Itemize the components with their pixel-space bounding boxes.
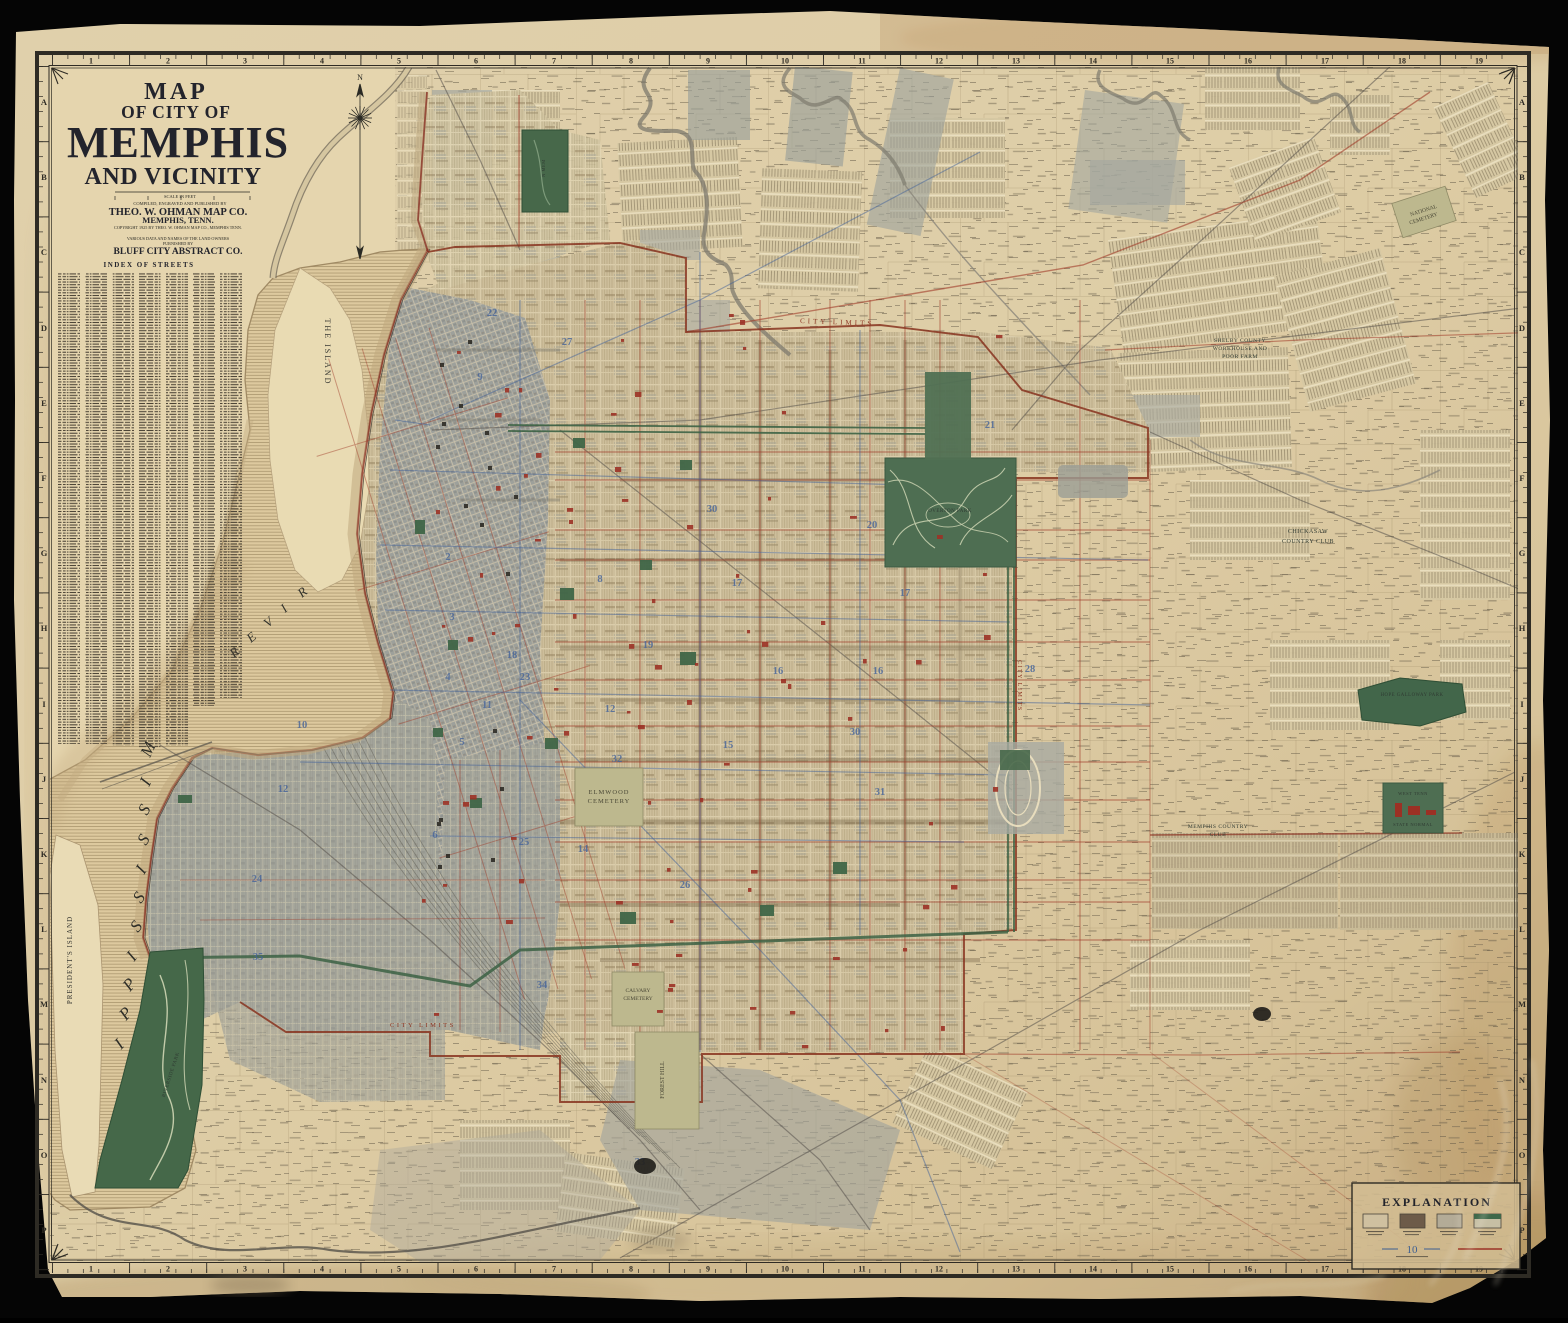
svg-text:A: A xyxy=(41,97,48,107)
svg-text:26: 26 xyxy=(680,880,691,891)
svg-text:CEMETERY: CEMETERY xyxy=(623,996,652,1002)
svg-text:PRESIDENT'S ISLAND: PRESIDENT'S ISLAND xyxy=(66,916,74,1004)
svg-text:E: E xyxy=(41,398,47,408)
svg-text:C: C xyxy=(1519,247,1525,257)
svg-text:3: 3 xyxy=(243,1265,247,1274)
svg-text:MEMPHIS, TENN.: MEMPHIS, TENN. xyxy=(142,215,213,225)
svg-text:SHELBY COUNTY: SHELBY COUNTY xyxy=(1214,338,1266,344)
svg-text:5: 5 xyxy=(459,737,464,748)
svg-text:H: H xyxy=(1519,623,1526,633)
svg-text:M: M xyxy=(1518,999,1526,1009)
svg-text:P: P xyxy=(41,1225,46,1235)
svg-text:10: 10 xyxy=(297,720,308,731)
svg-text:SCALE IN FEET: SCALE IN FEET xyxy=(164,194,196,199)
svg-text:12: 12 xyxy=(935,57,943,66)
svg-text:19: 19 xyxy=(1475,57,1483,66)
svg-text:19: 19 xyxy=(643,640,654,651)
svg-text:5: 5 xyxy=(397,57,401,66)
svg-text:4: 4 xyxy=(320,57,324,66)
svg-text:12: 12 xyxy=(605,704,616,715)
svg-text:11: 11 xyxy=(858,57,866,66)
svg-text:B: B xyxy=(41,172,47,182)
svg-text:17: 17 xyxy=(1321,57,1329,66)
svg-text:18: 18 xyxy=(507,650,518,661)
svg-text:4: 4 xyxy=(445,672,451,683)
svg-text:8: 8 xyxy=(629,57,633,66)
svg-text:HOPE GALLOWAY PARK: HOPE GALLOWAY PARK xyxy=(1381,693,1444,698)
svg-text:16: 16 xyxy=(773,666,784,677)
svg-text:L: L xyxy=(41,924,47,934)
svg-text:11: 11 xyxy=(482,700,492,711)
svg-text:15: 15 xyxy=(1166,1265,1174,1274)
svg-text:M: M xyxy=(40,999,48,1009)
svg-text:2: 2 xyxy=(166,57,170,66)
svg-text:14: 14 xyxy=(578,844,589,855)
svg-text:N: N xyxy=(41,1075,48,1085)
svg-text:ELMWOOD: ELMWOOD xyxy=(589,789,630,796)
svg-text:4: 4 xyxy=(320,1265,324,1274)
svg-text:FURNISHED BY: FURNISHED BY xyxy=(163,241,193,246)
svg-text:9: 9 xyxy=(706,1265,710,1274)
svg-text:20: 20 xyxy=(867,520,878,531)
svg-text:WORKHOUSE AND: WORKHOUSE AND xyxy=(1213,346,1268,352)
svg-text:AND VICINITY: AND VICINITY xyxy=(85,164,262,190)
svg-text:10: 10 xyxy=(781,57,789,66)
svg-text:WEST TENN: WEST TENN xyxy=(1398,791,1428,796)
svg-text:31: 31 xyxy=(875,787,886,798)
svg-text:9: 9 xyxy=(706,57,710,66)
svg-text:25: 25 xyxy=(519,837,530,848)
svg-text:MEMPHIS COUNTRY: MEMPHIS COUNTRY xyxy=(1188,824,1248,830)
svg-text:10: 10 xyxy=(781,1265,789,1274)
svg-text:14: 14 xyxy=(1089,57,1097,66)
svg-text:32: 32 xyxy=(612,754,623,765)
svg-text:22: 22 xyxy=(487,308,498,319)
svg-text:30: 30 xyxy=(850,727,861,738)
svg-text:2: 2 xyxy=(445,552,450,563)
svg-text:7: 7 xyxy=(552,1265,556,1274)
svg-text:K: K xyxy=(41,849,48,859)
svg-text:OVERTON PARK: OVERTON PARK xyxy=(928,509,972,514)
svg-text:16: 16 xyxy=(1244,1265,1252,1274)
svg-text:CEMETERY: CEMETERY xyxy=(588,798,631,805)
svg-text:9: 9 xyxy=(477,372,482,383)
svg-text:3: 3 xyxy=(449,612,454,623)
svg-text:23: 23 xyxy=(520,672,531,683)
svg-text:C: C xyxy=(41,247,47,257)
svg-text:G: G xyxy=(41,548,48,558)
svg-text:N: N xyxy=(357,73,363,82)
svg-text:13: 13 xyxy=(1012,57,1020,66)
svg-text:CALVARY: CALVARY xyxy=(625,988,650,994)
svg-text:15: 15 xyxy=(723,740,734,751)
svg-text:35: 35 xyxy=(253,952,264,963)
svg-text:F: F xyxy=(41,473,46,483)
svg-text:N MEM: N MEM xyxy=(541,159,546,177)
svg-text:STATE NORMAL: STATE NORMAL xyxy=(1393,822,1433,827)
svg-text:28: 28 xyxy=(1025,664,1036,675)
svg-text:3: 3 xyxy=(243,57,247,66)
svg-text:24: 24 xyxy=(252,874,263,885)
svg-text:16: 16 xyxy=(1244,57,1252,66)
svg-text:BLUFF CITY ABSTRACT CO.: BLUFF CITY ABSTRACT CO. xyxy=(114,247,243,257)
svg-text:6: 6 xyxy=(432,830,437,841)
svg-text:CITY LIMITS: CITY LIMITS xyxy=(1016,660,1022,712)
svg-text:1: 1 xyxy=(89,1265,93,1274)
svg-text:8: 8 xyxy=(597,574,602,585)
svg-text:F: F xyxy=(1519,473,1524,483)
svg-text:L: L xyxy=(1519,924,1525,934)
svg-text:1: 1 xyxy=(89,57,93,66)
svg-text:11: 11 xyxy=(858,1265,866,1274)
svg-text:MEMPHIS: MEMPHIS xyxy=(67,118,289,167)
svg-text:14: 14 xyxy=(1089,1265,1097,1274)
svg-text:6: 6 xyxy=(474,1265,478,1274)
svg-text:27: 27 xyxy=(562,337,573,348)
svg-text:E: E xyxy=(1519,398,1525,408)
svg-text:6: 6 xyxy=(474,57,478,66)
svg-text:CITY LIMITS: CITY LIMITS xyxy=(390,1022,456,1029)
svg-text:30: 30 xyxy=(707,504,718,515)
svg-text:5: 5 xyxy=(397,1265,401,1274)
svg-text:B: B xyxy=(1519,172,1525,182)
svg-text:16: 16 xyxy=(873,666,884,677)
svg-text:18: 18 xyxy=(1398,57,1406,66)
svg-text:THE ISLAND: THE ISLAND xyxy=(323,319,332,386)
svg-text:12: 12 xyxy=(935,1265,943,1274)
svg-text:A: A xyxy=(1519,97,1526,107)
svg-text:17: 17 xyxy=(732,578,743,589)
svg-text:13: 13 xyxy=(1012,1265,1020,1274)
svg-text:17: 17 xyxy=(1321,1265,1329,1274)
svg-text:INDEX OF STREETS: INDEX OF STREETS xyxy=(103,261,194,269)
svg-text:K: K xyxy=(1519,849,1526,859)
svg-text:H: H xyxy=(41,623,48,633)
svg-text:17: 17 xyxy=(900,588,911,599)
svg-text:FOREST HILL: FOREST HILL xyxy=(660,1061,666,1099)
svg-text:COUNTRY CLUB: COUNTRY CLUB xyxy=(1282,539,1334,545)
svg-text:CHICKASAW: CHICKASAW xyxy=(1288,529,1328,535)
svg-text:21: 21 xyxy=(985,420,996,431)
svg-text:7: 7 xyxy=(552,57,556,66)
svg-text:O: O xyxy=(1519,1150,1526,1160)
svg-text:O: O xyxy=(41,1150,48,1160)
svg-text:N: N xyxy=(1519,1075,1526,1085)
svg-text:2: 2 xyxy=(166,1265,170,1274)
svg-text:D: D xyxy=(41,323,47,333)
svg-text:CLUB: CLUB xyxy=(1210,832,1227,838)
svg-text:EXPLANATION: EXPLANATION xyxy=(1382,1195,1492,1209)
svg-text:10: 10 xyxy=(1407,1244,1419,1256)
svg-text:D: D xyxy=(1519,323,1525,333)
svg-text:8: 8 xyxy=(629,1265,633,1274)
svg-text:34: 34 xyxy=(537,980,548,991)
svg-text:POOR FARM: POOR FARM xyxy=(1222,354,1258,360)
svg-text:G: G xyxy=(1519,548,1526,558)
svg-text:15: 15 xyxy=(1166,57,1174,66)
svg-text:12: 12 xyxy=(278,784,289,795)
